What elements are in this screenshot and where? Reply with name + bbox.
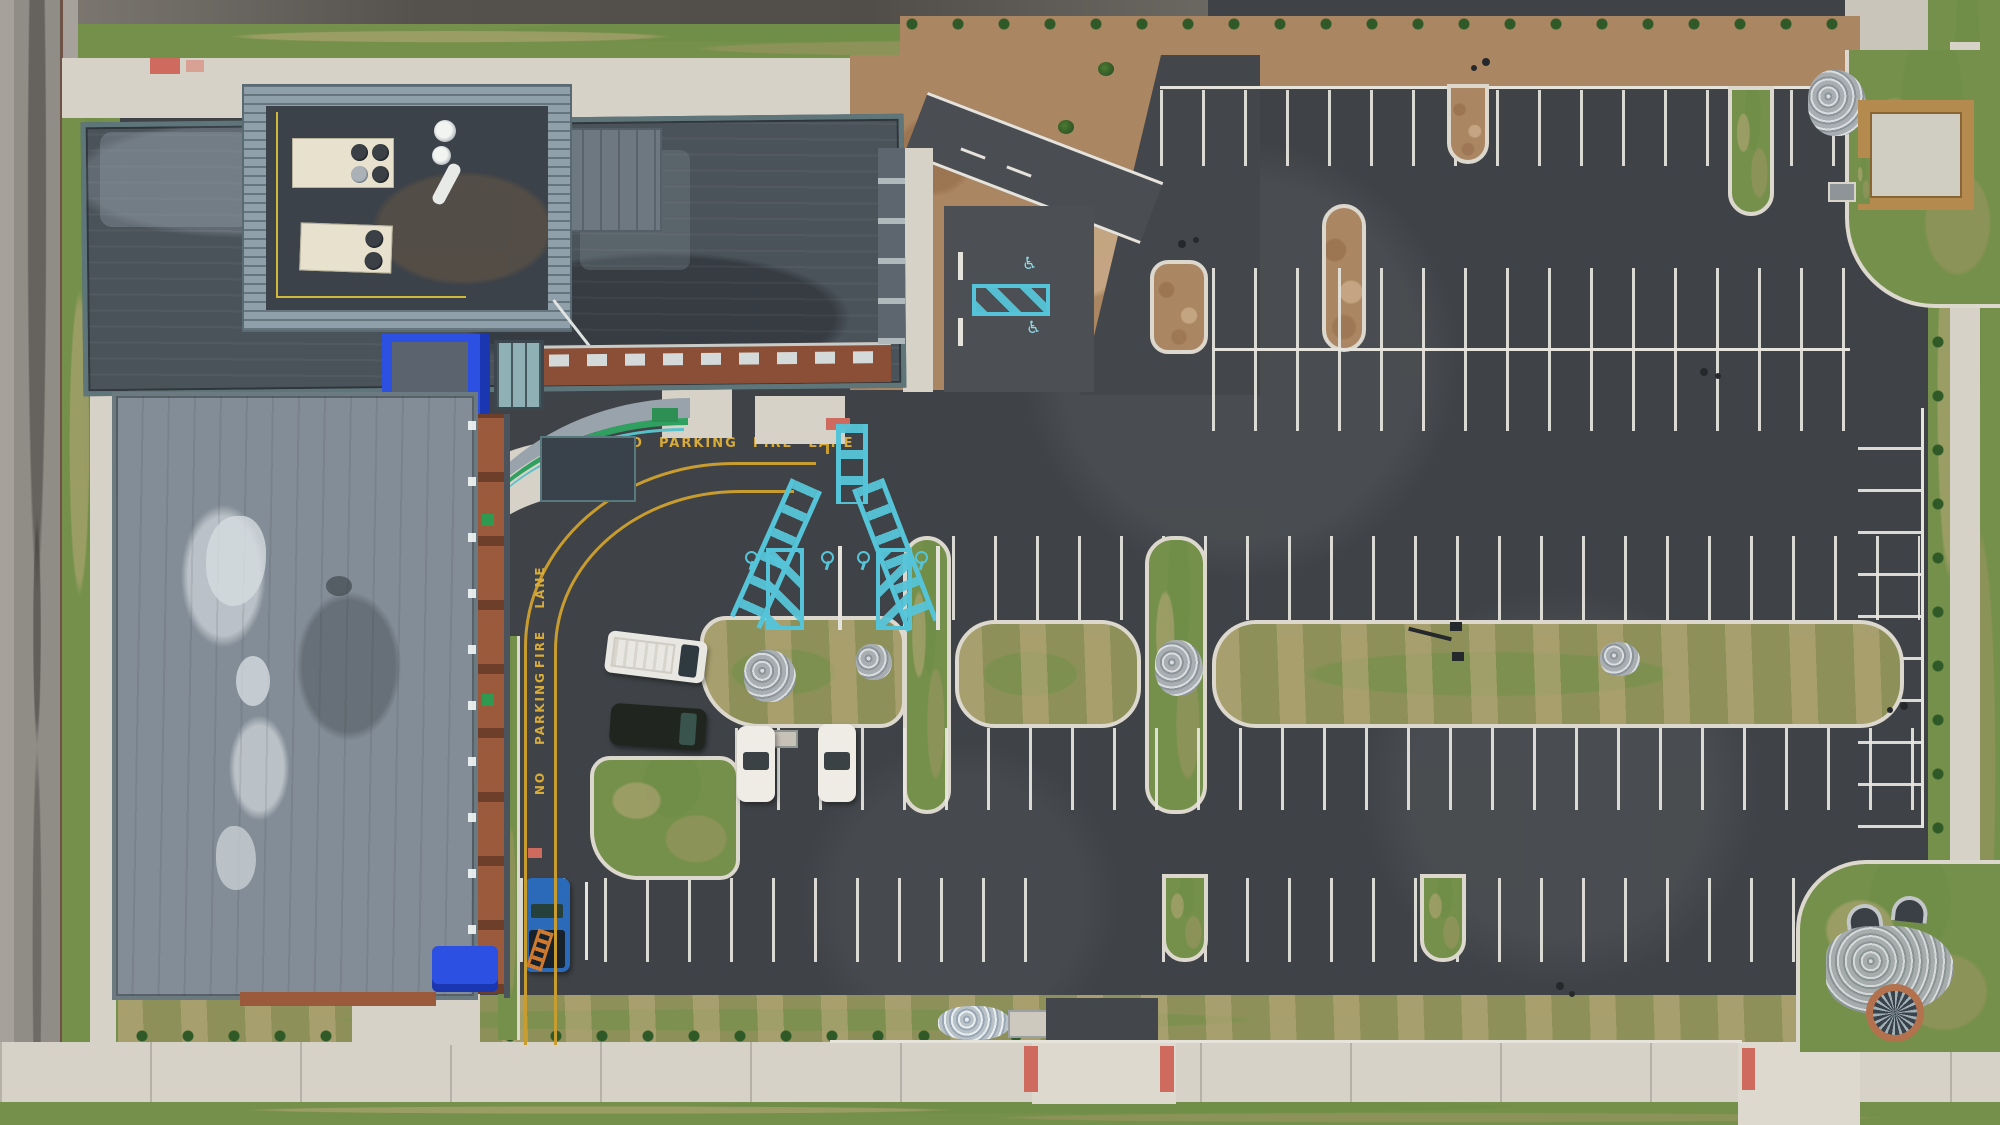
island-mid-west xyxy=(1150,260,1208,354)
walk-building-east xyxy=(903,148,933,392)
facade-brick-south-lower xyxy=(240,992,436,1006)
building-roof-lower xyxy=(112,392,478,1000)
light-pole xyxy=(1900,702,1908,710)
stall-line xyxy=(838,546,842,630)
roof-stain-3 xyxy=(216,826,256,890)
drainage-basin xyxy=(1866,984,1924,1042)
stall-row-4 xyxy=(952,536,1920,620)
dumpster-enclosure xyxy=(1858,100,1974,210)
facade-east-upper xyxy=(878,148,905,344)
median-east xyxy=(1212,620,1904,728)
curb-ramp-red-north xyxy=(150,58,180,74)
hvac-fan xyxy=(372,166,389,183)
grass-south-edge xyxy=(0,1102,2000,1125)
rock-pile-center-2 xyxy=(856,644,892,680)
driveway-apron-southeast xyxy=(1738,1042,1860,1125)
shrub xyxy=(1098,62,1114,76)
roof-flue-2 xyxy=(432,146,451,165)
curb-ramp-red-center-left xyxy=(1024,1046,1038,1092)
median-west xyxy=(955,620,1141,728)
utility-pad-south xyxy=(1008,1010,1050,1038)
painted-stall-symbol-3 xyxy=(856,550,870,570)
stall-row-6-east xyxy=(1162,878,1796,962)
fire-lane-word-vertical-fire: FIRE xyxy=(533,621,547,677)
stall-row-2 xyxy=(1212,268,1850,348)
wheelchair-symbol-2: ♿ xyxy=(1026,320,1041,337)
facade-brick-south xyxy=(505,342,891,386)
light-pole xyxy=(1482,58,1490,66)
rock-pile-median xyxy=(1155,640,1203,696)
hvac-unit-2 xyxy=(299,222,393,273)
gravel-debris-pile xyxy=(938,1006,1010,1040)
white-sedan-2 xyxy=(818,724,856,802)
dumpster-enclosure-opening xyxy=(1856,158,1870,204)
fallen-pole-head-2 xyxy=(1452,652,1464,661)
hvac-unit-1 xyxy=(292,138,394,188)
island-north-u xyxy=(1447,84,1489,164)
street-west-worn-lane xyxy=(14,0,60,1125)
sign-plaque xyxy=(1828,182,1856,202)
roof-stain-2 xyxy=(236,656,270,706)
stall-row-5 xyxy=(735,728,1920,810)
mulch-north-lot-strip xyxy=(900,16,1860,88)
hvac-fan xyxy=(351,144,368,161)
light-pole xyxy=(1700,368,1708,376)
light-pole xyxy=(1178,240,1186,248)
aerial-photo-scene: ♿ ♿ xyxy=(0,0,2000,1125)
island-finger-south-1 xyxy=(1162,874,1208,962)
island-finger-south-2 xyxy=(1420,874,1466,962)
access-aisle-hatch xyxy=(972,284,1050,316)
hvac-fan-gray xyxy=(351,166,368,183)
stall-bar xyxy=(958,318,963,346)
painted-stall-symbol-2 xyxy=(820,550,834,570)
roof-stain-1 xyxy=(206,516,266,606)
fire-lane-word-vertical-no: NO xyxy=(533,755,547,811)
hvac-fan xyxy=(365,230,384,249)
mechanical-well-floor xyxy=(266,106,548,310)
sidewalk-south xyxy=(0,1042,2000,1104)
glass-atrium-strip xyxy=(494,340,544,410)
window-glints-lower-east xyxy=(468,420,476,990)
curb-ramp-red-southeast xyxy=(1742,1048,1755,1090)
curb-ramp-red-center-right xyxy=(1160,1046,1174,1092)
island-north-j xyxy=(1728,86,1774,216)
rock-pile-median-2 xyxy=(1600,642,1640,676)
hvac-fan xyxy=(372,144,389,161)
fallen-pole-head-1 xyxy=(1450,622,1462,631)
roof-light-patch-1 xyxy=(100,132,250,227)
green-rooftop-unit-2 xyxy=(482,694,494,706)
hvac-fan xyxy=(364,252,383,271)
window-row xyxy=(511,351,881,367)
stall-line xyxy=(936,546,940,630)
wheelchair-symbol-1: ♿ xyxy=(1022,256,1037,273)
roof-flue-1 xyxy=(434,120,456,142)
painted-stall-symbol-4 xyxy=(914,550,928,570)
green-awning-piece xyxy=(652,408,678,422)
stall-bar xyxy=(958,252,963,280)
lot-south-curbline xyxy=(830,1040,1742,1043)
shrub xyxy=(1058,120,1074,134)
stall-row-3 xyxy=(1212,351,1850,431)
light-pole xyxy=(1556,982,1564,990)
curb-ramp-faint-north xyxy=(186,60,204,72)
blue-canopy-southeast xyxy=(432,946,498,992)
painted-stall-symbol-1 xyxy=(744,550,758,570)
gas-pipe-yellow-v xyxy=(276,112,278,298)
roof-panel-section xyxy=(562,128,662,232)
driveway-south-center xyxy=(1046,998,1158,1046)
entry-vestibule-roof xyxy=(540,436,636,502)
driveway-apron-center xyxy=(1032,1042,1176,1104)
fire-lane-word-vertical-parking: PARKING xyxy=(533,681,547,745)
no-park-hatch-right xyxy=(876,548,912,630)
sedan-glass xyxy=(824,752,850,770)
gas-pipe-yellow-h xyxy=(276,296,466,298)
green-rooftop-unit-1 xyxy=(482,514,494,526)
no-park-hatch-left xyxy=(766,548,804,630)
roof-dark-spot xyxy=(326,576,352,596)
roofline-shadow-east xyxy=(504,414,510,998)
